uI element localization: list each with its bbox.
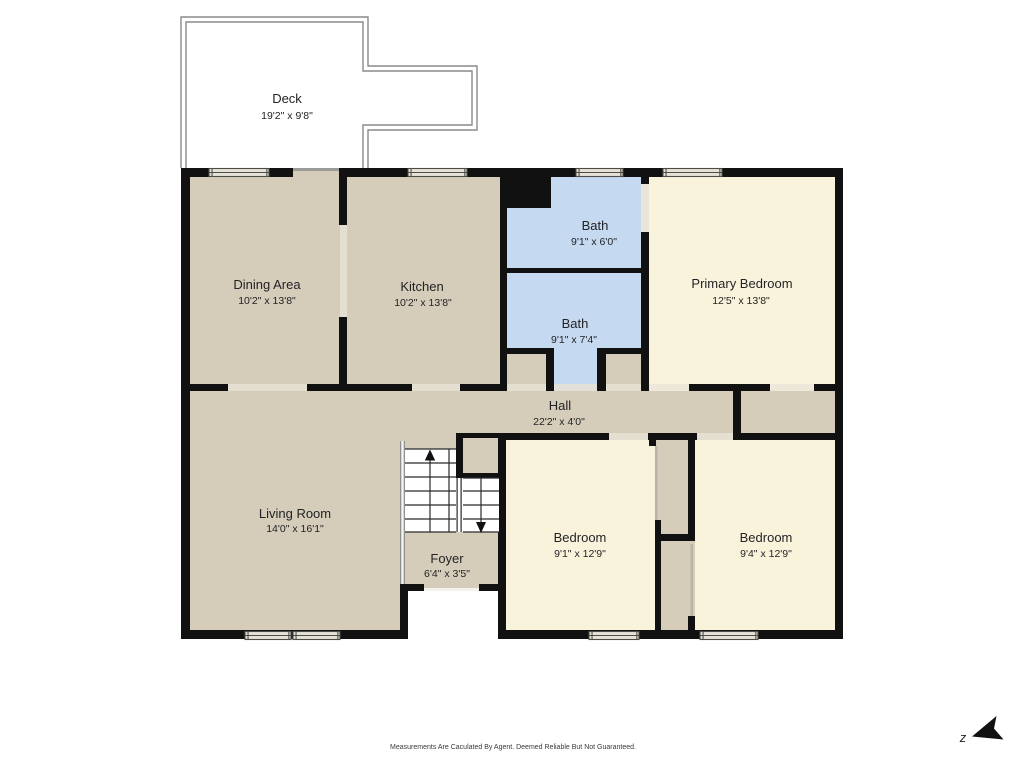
- svg-text:Dining Area: Dining Area: [233, 277, 301, 292]
- svg-text:Deck: Deck: [272, 91, 302, 106]
- svg-text:9'1" x 12'9": 9'1" x 12'9": [554, 548, 606, 560]
- svg-text:9'1" x 7'4": 9'1" x 7'4": [551, 334, 597, 346]
- svg-text:Bath: Bath: [562, 316, 589, 331]
- svg-text:22'2" x 4'0": 22'2" x 4'0": [533, 416, 585, 428]
- svg-text:Bath: Bath: [582, 218, 609, 233]
- svg-text:Measurements Are Caculated By: Measurements Are Caculated By Agent. Dee…: [390, 744, 636, 751]
- svg-text:Living Room: Living Room: [259, 506, 331, 521]
- svg-text:9'1" x 6'0": 9'1" x 6'0": [571, 236, 617, 248]
- svg-text:Bedroom: Bedroom: [554, 530, 607, 545]
- svg-text:10'2" x 13'8": 10'2" x 13'8": [238, 295, 296, 307]
- svg-text:14'0" x 16'1": 14'0" x 16'1": [266, 523, 324, 535]
- svg-text:Bedroom: Bedroom: [740, 530, 793, 545]
- svg-text:6'4" x 3'5": 6'4" x 3'5": [424, 568, 470, 580]
- svg-text:Kitchen: Kitchen: [400, 279, 443, 294]
- svg-text:Foyer: Foyer: [430, 551, 464, 566]
- svg-text:z: z: [959, 730, 967, 745]
- svg-text:Hall: Hall: [549, 398, 572, 413]
- svg-text:12'5" x 13'8": 12'5" x 13'8": [712, 295, 770, 307]
- svg-text:10'2" x 13'8": 10'2" x 13'8": [394, 297, 452, 309]
- svg-text:9'4" x 12'9": 9'4" x 12'9": [740, 548, 792, 560]
- svg-text:Primary Bedroom: Primary Bedroom: [691, 276, 792, 291]
- svg-text:19'2" x 9'8": 19'2" x 9'8": [261, 110, 313, 122]
